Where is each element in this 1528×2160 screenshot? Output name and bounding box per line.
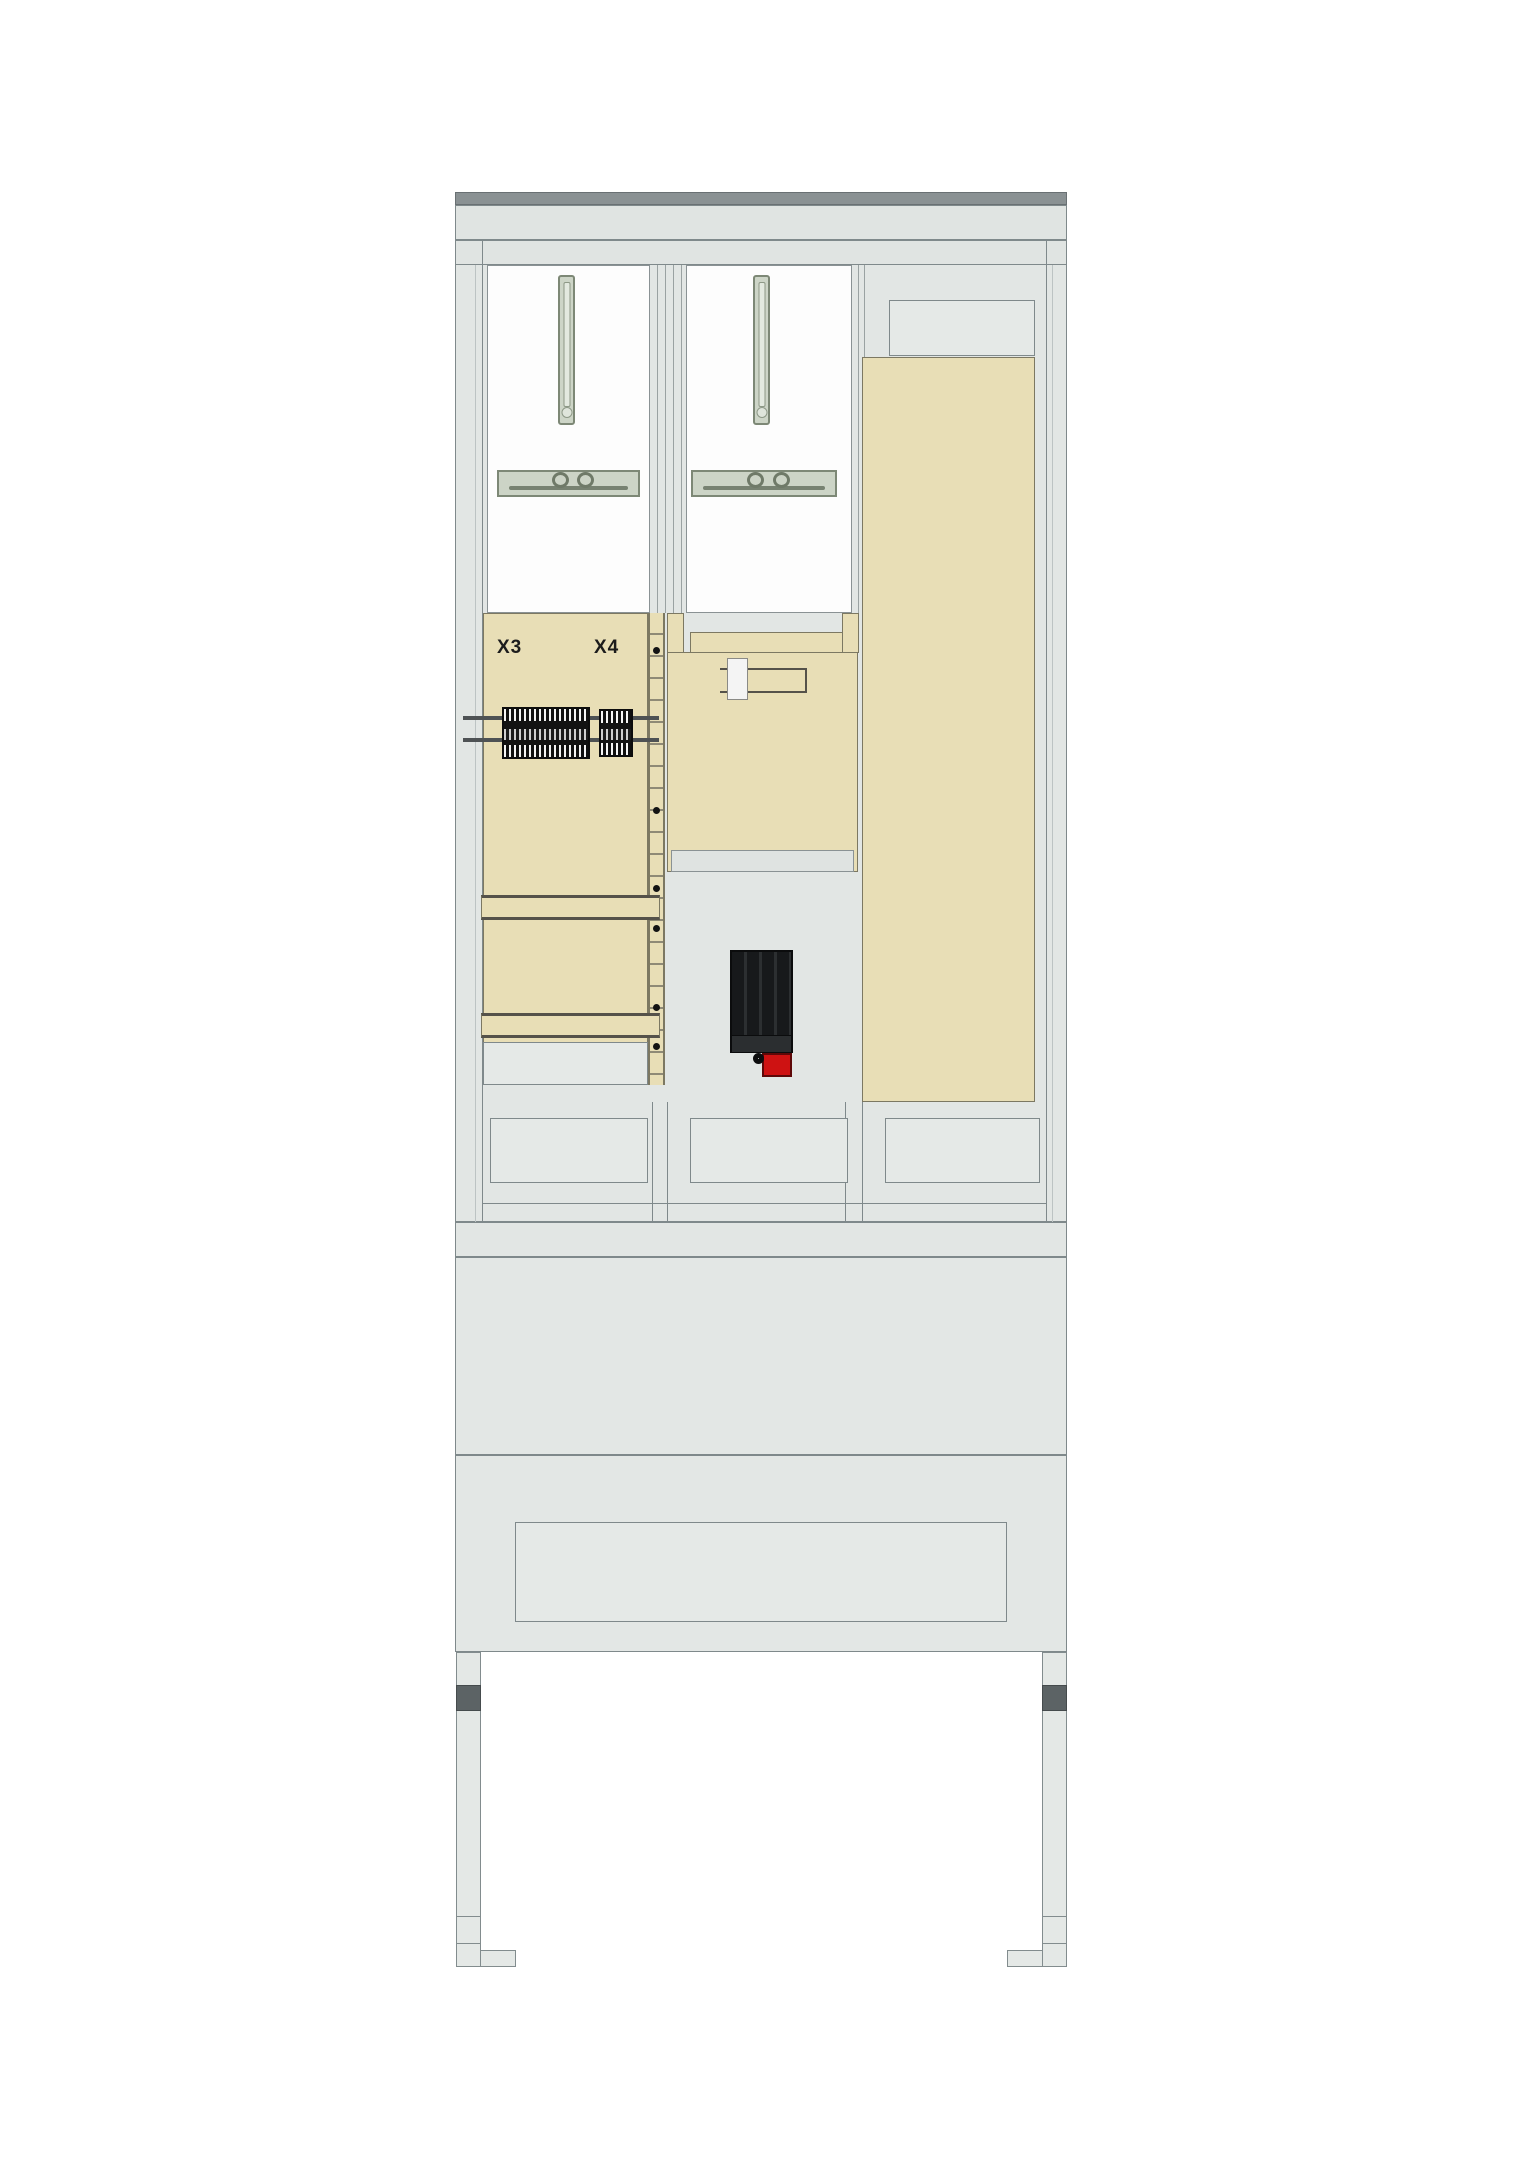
frame-inner-line-right (1052, 265, 1053, 1222)
frame-line-right (1046, 240, 1047, 1222)
panel-divider-line (657, 265, 658, 613)
center-panel-tab-right (842, 613, 859, 653)
screw-dot (653, 1004, 660, 1011)
cabinet-header-strip (456, 241, 1066, 265)
terminal-block-x4 (599, 709, 633, 757)
red-switch-handle (762, 1053, 792, 1077)
lower-row-divider (652, 1102, 653, 1222)
din-rail-lower (481, 1013, 660, 1038)
leg-right-foot (1007, 1950, 1043, 1967)
lower-inset-panel-right (885, 1118, 1040, 1183)
screw-dot (653, 647, 660, 654)
leg-right-joint-line (1042, 1943, 1067, 1944)
hook-bar-slot (703, 486, 825, 490)
din-rail-upper (481, 895, 660, 920)
screw-dot (653, 1043, 660, 1050)
meter-cabinet-diagram: X3 X4 (0, 0, 1528, 2160)
panel-divider-line (681, 265, 682, 613)
mounting-plate-right (862, 357, 1035, 1102)
panel-divider-line (858, 265, 859, 613)
switch-lock-ring-icon (753, 1053, 764, 1064)
lower-cover-panel (455, 1257, 1067, 1455)
hook-icon (577, 472, 594, 488)
leg-right-clamp (1042, 1685, 1067, 1711)
base-inset-plate (515, 1522, 1007, 1622)
meter-hook-bar-left (497, 470, 640, 497)
slot-groove (758, 282, 765, 407)
terminal-block-x3 (502, 707, 590, 759)
center-mounting-panel (667, 652, 858, 872)
slot-screw-hole (561, 407, 572, 418)
terminal-label-x3: X3 (497, 637, 522, 659)
leg-left-joint-line (456, 1943, 481, 1944)
screw-dot (653, 925, 660, 932)
leg-left-joint-line (456, 1916, 481, 1917)
screw-dot (653, 807, 660, 814)
center-panel-tab-left (667, 613, 684, 653)
panel-divider-line (673, 265, 674, 613)
lower-row-divider (667, 1102, 668, 1222)
terminal-label-x4: X4 (594, 637, 619, 659)
clip-rail-end (805, 668, 807, 693)
meter-hook-bar-right (691, 470, 837, 497)
leg-right-joint-line (1042, 1916, 1067, 1917)
meter-fixing-slot-right (753, 275, 770, 425)
lower-row-line (482, 1203, 1046, 1204)
cabinet-top-band (455, 205, 1067, 240)
slot-screw-hole (756, 407, 767, 418)
right-column-recess (889, 300, 1035, 356)
leg-left-clamp (456, 1685, 481, 1711)
hook-bar-slot (509, 486, 629, 490)
screw-dot (653, 885, 660, 892)
slot-groove (563, 282, 570, 407)
meter-fixing-slot-left (558, 275, 575, 425)
leg-left-foot (480, 1950, 516, 1967)
hook-icon (773, 472, 790, 488)
main-switch-lower-band (732, 1035, 791, 1052)
center-panel-raised-top (690, 632, 843, 654)
lower-row-divider (862, 1102, 863, 1222)
left-column-lower-tray (483, 1042, 648, 1085)
rail-clip (727, 658, 748, 700)
center-panel-channel (671, 850, 854, 872)
cabinet-bottom-rail (455, 1222, 1067, 1257)
lower-inset-panel-left (490, 1118, 648, 1183)
hook-icon (747, 472, 764, 488)
frame-inner-line-left (475, 265, 476, 1222)
cabinet-top-cap (455, 192, 1067, 205)
panel-divider-line (665, 265, 666, 613)
hook-icon (552, 472, 569, 488)
lower-inset-panel-middle (690, 1118, 848, 1183)
